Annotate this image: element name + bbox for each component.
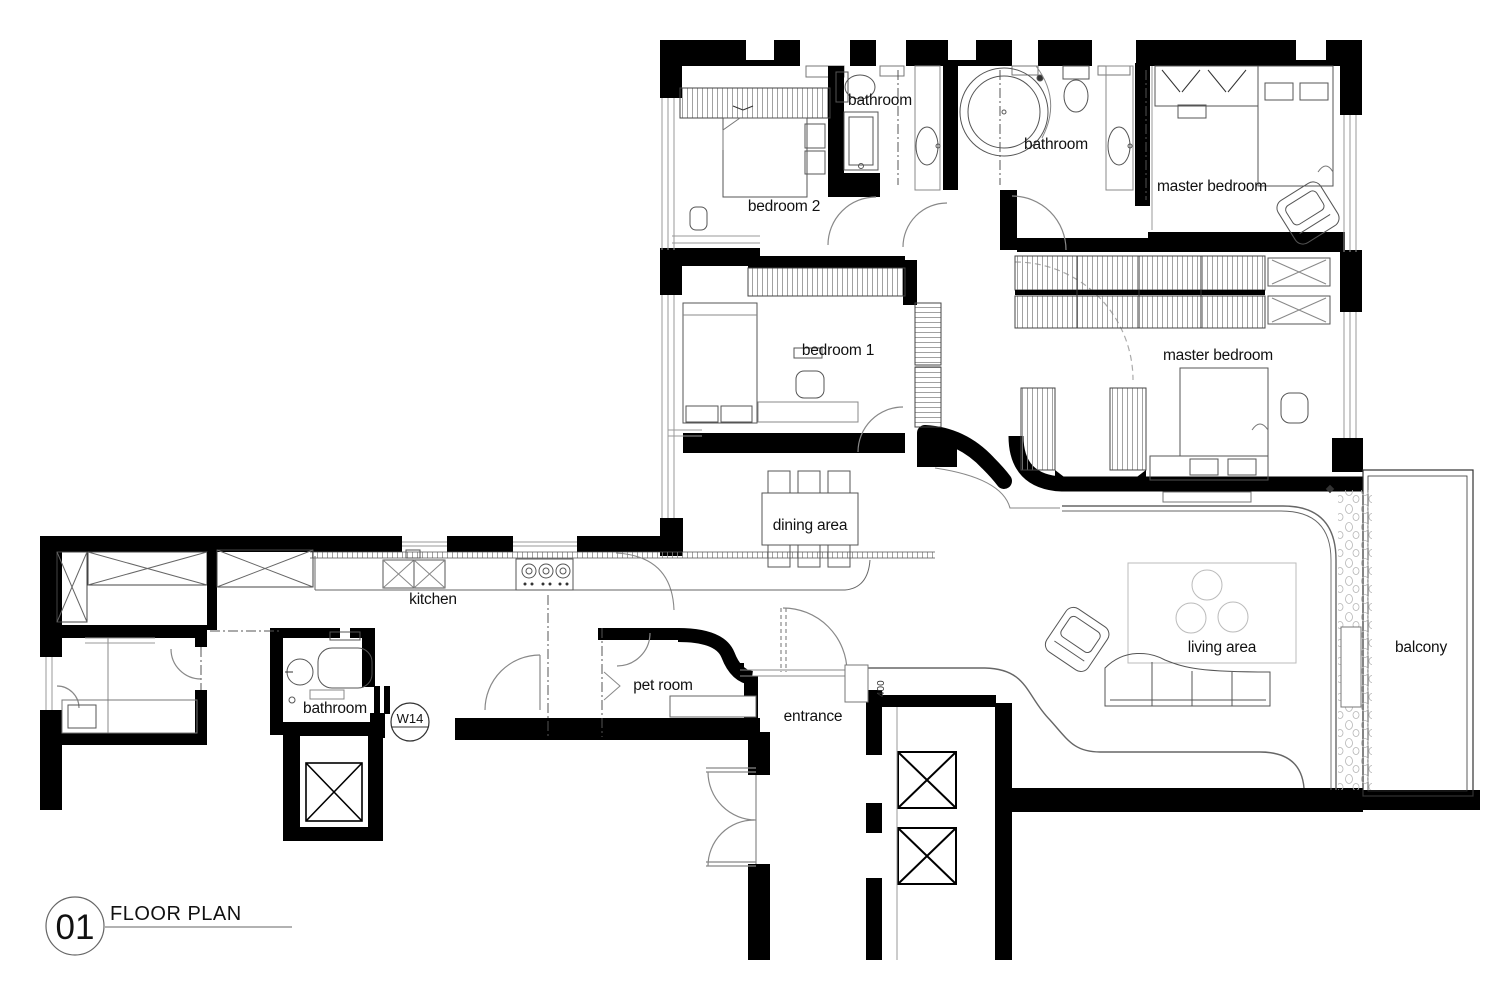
sink-icon (916, 127, 938, 165)
window-tag-label: W14 (397, 711, 424, 726)
closet (1155, 66, 1258, 106)
entry-niche (845, 665, 868, 702)
stool (690, 207, 707, 230)
room-label-bedroom-2: bedroom 2 (748, 198, 820, 215)
living-partition-curve (868, 668, 1304, 788)
coffee-table (1176, 603, 1206, 633)
room-label-master-bedroom-main: master bedroom (1163, 347, 1273, 364)
floor-plan: bedroom 2 bedroom 1 bathroom bathroom ba… (0, 0, 1500, 1000)
wardrobe-row (1015, 256, 1265, 290)
nightstand (1281, 393, 1308, 423)
bathroom-master-fixtures (960, 66, 1133, 190)
room-label-bathroom-master: bathroom (1024, 136, 1088, 153)
sink-icon (1108, 127, 1130, 165)
sheet-number: 01 (56, 908, 95, 947)
room-label-living-area: living area (1188, 639, 1257, 656)
wardrobe-row (1015, 296, 1265, 328)
wardrobe (748, 268, 905, 296)
vanity (915, 66, 940, 190)
sliding-door (1341, 627, 1361, 707)
room-label-entrance: entrance (784, 708, 843, 725)
room-label-dining-area: dining area (773, 517, 848, 534)
room-label-bathroom-service: bathroom (303, 700, 367, 717)
vanity (310, 690, 344, 699)
pet-door-flap (604, 672, 620, 700)
bed-icon (1180, 368, 1268, 456)
storage-cabinets (57, 550, 313, 630)
cabinet (915, 367, 941, 427)
balcony-structure (1163, 470, 1473, 796)
master-top-furniture (1152, 66, 1342, 247)
bed-icon (683, 303, 757, 423)
coffee-table (1218, 602, 1248, 632)
room-label-bathroom-top: bathroom (848, 92, 912, 109)
title-block: 01 FLOOR PLAN (46, 897, 292, 955)
small-room-furniture (62, 638, 197, 733)
chair (796, 371, 824, 398)
floor-plan-canvas: bedroom 2 bedroom 1 bathroom bathroom ba… (0, 0, 1500, 1000)
room-label-pet-room: pet room (633, 677, 693, 694)
wardrobe (680, 88, 830, 118)
door-arcs (57, 196, 1133, 866)
coffee-table (1192, 570, 1222, 600)
chair (798, 471, 820, 493)
bathroom-top-fixtures (836, 66, 940, 190)
balcony-door-track (1163, 492, 1251, 502)
pet-counter (670, 696, 756, 717)
toilet-icon (1064, 80, 1088, 112)
room-label-kitchen: kitchen (409, 591, 457, 608)
room-label-balcony: balcony (1395, 639, 1447, 656)
sheet-title: FLOOR PLAN (110, 903, 242, 925)
armchair-icon (1042, 604, 1113, 675)
living-furniture (1042, 563, 1296, 706)
sofa-icon (1105, 653, 1270, 706)
room-label-bedroom-1: bedroom 1 (802, 342, 874, 359)
service-bath-fixtures (285, 632, 372, 703)
chair (828, 471, 850, 493)
shaft-symbols (306, 752, 956, 884)
wardrobe (1021, 388, 1055, 470)
desk (758, 402, 858, 422)
toilet-tank (1063, 66, 1089, 79)
master-main-furniture (1015, 256, 1330, 483)
chair (768, 471, 790, 493)
wardrobe (1110, 388, 1146, 470)
room-label-master-bedroom-top: master bedroom (1157, 178, 1267, 195)
glass-lines (616, 468, 1336, 790)
door-width-dimension: 400 (876, 680, 887, 697)
bed-icon (723, 118, 807, 197)
beam-band (310, 552, 935, 558)
vanity (1106, 66, 1133, 190)
cabinet (915, 303, 941, 365)
